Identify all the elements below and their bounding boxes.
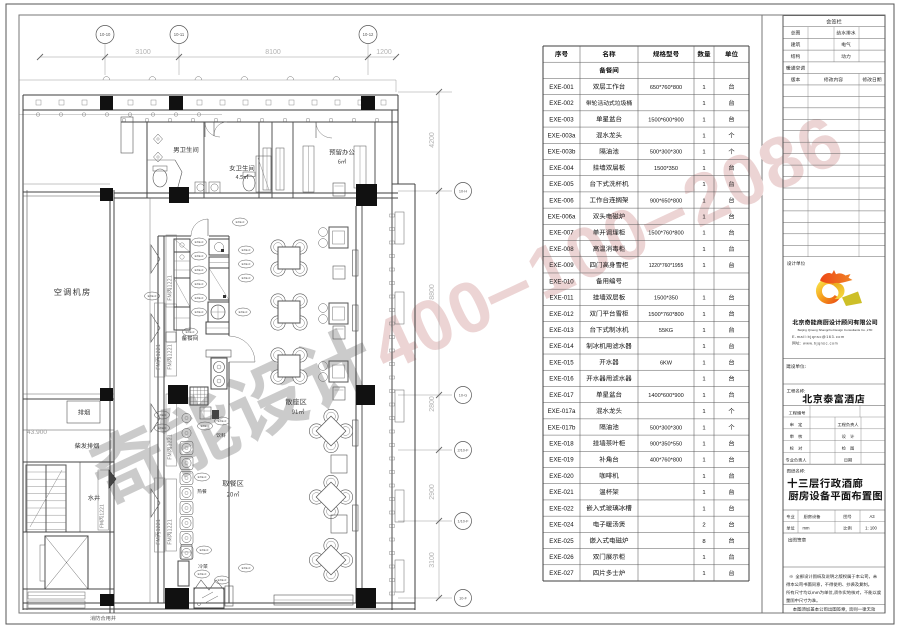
svg-text:EXE-0: EXE-0 xyxy=(218,419,227,423)
svg-text:EXE-0: EXE-0 xyxy=(218,578,227,582)
svg-text:EXE-0: EXE-0 xyxy=(242,566,251,570)
svg-text:900*650*800: 900*650*800 xyxy=(650,198,682,204)
svg-text:EXE-0: EXE-0 xyxy=(239,310,248,314)
svg-text:1: 100: 1: 100 xyxy=(865,526,877,531)
svg-text:10-G: 10-G xyxy=(459,394,467,398)
svg-text:10-H: 10-H xyxy=(459,190,467,194)
svg-text:EXE-0: EXE-0 xyxy=(200,548,209,552)
svg-text:1: 1 xyxy=(702,231,705,237)
svg-text:1: 1 xyxy=(702,296,705,302)
svg-text:900*350*550: 900*350*550 xyxy=(650,441,682,447)
svg-text:EXE-013: EXE-013 xyxy=(549,327,574,334)
svg-text:1: 1 xyxy=(702,393,705,399)
svg-text:EXE-0: EXE-0 xyxy=(195,310,204,314)
svg-text:2800: 2800 xyxy=(429,396,436,412)
svg-text:55KG: 55KG xyxy=(659,328,673,334)
svg-text:1: 1 xyxy=(702,182,705,188)
svg-text:EXE-017: EXE-017 xyxy=(549,392,574,399)
svg-text:EXE-024: EXE-024 xyxy=(549,522,574,529)
svg-text:EXE-0: EXE-0 xyxy=(242,248,251,252)
svg-text:EXE-018: EXE-018 xyxy=(549,440,574,447)
svg-text:1: 1 xyxy=(702,344,705,350)
svg-text:EXE-026: EXE-026 xyxy=(549,554,574,561)
svg-text:10-F: 10-F xyxy=(459,597,467,601)
svg-text:EXE-014: EXE-014 xyxy=(549,343,574,350)
svg-text:EXE-016: EXE-016 xyxy=(549,376,574,383)
svg-text:3100: 3100 xyxy=(429,552,436,568)
svg-text:EXE-0: EXE-0 xyxy=(242,262,251,266)
svg-text:2: 2 xyxy=(702,523,705,529)
svg-text:4200: 4200 xyxy=(429,132,436,148)
svg-text:1/10-F: 1/10-F xyxy=(458,520,470,524)
svg-text:EXE-003a: EXE-003a xyxy=(548,132,576,139)
svg-text:EXE-0: EXE-0 xyxy=(236,220,245,224)
svg-text:10-10: 10-10 xyxy=(100,32,111,37)
svg-text:3100: 3100 xyxy=(135,49,151,56)
svg-text:2086: 2086 xyxy=(671,100,855,243)
svg-text:1: 1 xyxy=(702,555,705,561)
svg-text:650*760*800: 650*760*800 xyxy=(650,85,682,91)
svg-text:2900: 2900 xyxy=(429,484,436,500)
svg-text:EXE-001: EXE-001 xyxy=(549,84,574,91)
svg-text:EXE-020: EXE-020 xyxy=(549,473,574,480)
svg-text:EXE-006a: EXE-006a xyxy=(548,214,576,221)
svg-text:1: 1 xyxy=(702,328,705,334)
svg-text:400*760*800: 400*760*800 xyxy=(650,458,682,464)
svg-text:EXE-0: EXE-0 xyxy=(158,413,167,417)
svg-text:EXE-0: EXE-0 xyxy=(186,330,195,334)
svg-text:EXE-019: EXE-019 xyxy=(549,457,574,464)
svg-text:1: 1 xyxy=(702,133,705,139)
svg-text:2/10-F: 2/10-F xyxy=(458,449,470,453)
svg-text:EXE-003: EXE-003 xyxy=(549,116,574,123)
svg-text:1: 1 xyxy=(702,490,705,496)
svg-text:Beijing Qineng Shangchu Design: Beijing Qineng Shangchu Design Consultan… xyxy=(798,328,874,332)
svg-text:EXE-011: EXE-011 xyxy=(550,295,575,302)
svg-text:EXE-0: EXE-0 xyxy=(242,276,251,280)
svg-text:EXE-002: EXE-002 xyxy=(549,100,574,107)
svg-text:1: 1 xyxy=(702,198,705,204)
svg-text:400: 400 xyxy=(359,263,506,388)
svg-text:EXE-007: EXE-007 xyxy=(549,230,574,237)
svg-text:EXE-005: EXE-005 xyxy=(549,181,574,188)
svg-text:1400*600*900: 1400*600*900 xyxy=(648,393,683,399)
svg-text:EXE-021: EXE-021 xyxy=(549,489,574,496)
svg-text:1: 1 xyxy=(702,409,705,415)
svg-text:EXE-0: EXE-0 xyxy=(148,294,157,298)
svg-text:500*300*300: 500*300*300 xyxy=(650,150,682,156)
svg-text:EXE-006: EXE-006 xyxy=(549,197,574,204)
svg-text:1: 1 xyxy=(702,571,705,577)
svg-text:EXE-017a: EXE-017a xyxy=(548,408,576,415)
svg-text:1: 1 xyxy=(702,506,705,512)
svg-text:1: 1 xyxy=(702,425,705,431)
svg-text:1: 1 xyxy=(702,215,705,221)
svg-text:1: 1 xyxy=(702,101,705,107)
svg-text:EXE-0: EXE-0 xyxy=(158,426,167,430)
svg-text:1: 1 xyxy=(702,312,705,318)
svg-text:EXE-0: EXE-0 xyxy=(195,240,204,244)
svg-text:EXE-004: EXE-004 xyxy=(549,165,574,172)
svg-text:1500*760*800: 1500*760*800 xyxy=(648,312,683,318)
svg-text:1: 1 xyxy=(702,360,705,366)
svg-text:EXE-0: EXE-0 xyxy=(195,268,204,272)
svg-text:6KW: 6KW xyxy=(660,360,673,366)
svg-text:8: 8 xyxy=(702,539,706,545)
svg-text:1: 1 xyxy=(702,85,705,91)
svg-text:1500*600*900: 1500*600*900 xyxy=(648,117,683,123)
svg-text:10-11: 10-11 xyxy=(174,32,185,37)
svg-text:10-12: 10-12 xyxy=(363,32,374,37)
svg-text:1: 1 xyxy=(702,474,705,480)
svg-text:E-mail:bjqnsc@163.com: E-mail:bjqnsc@163.com xyxy=(792,335,845,339)
svg-text:EXE-025: EXE-025 xyxy=(549,538,574,545)
svg-text:EXE-0: EXE-0 xyxy=(201,424,210,428)
svg-text:1220*760*1955: 1220*760*1955 xyxy=(649,263,684,269)
svg-text:EXE-0: EXE-0 xyxy=(195,296,204,300)
svg-text:1: 1 xyxy=(702,117,705,123)
svg-text:EXE-0: EXE-0 xyxy=(198,475,207,479)
svg-text:EXE-008: EXE-008 xyxy=(549,246,574,253)
svg-text:EXE-027: EXE-027 xyxy=(549,570,574,577)
svg-text:43.900: 43.900 xyxy=(27,429,47,436)
svg-text:EXE-0: EXE-0 xyxy=(198,572,207,576)
svg-text:500*300*300: 500*300*300 xyxy=(650,425,682,431)
svg-text:1500*350: 1500*350 xyxy=(654,166,678,172)
svg-text:1: 1 xyxy=(702,458,705,464)
svg-text:1: 1 xyxy=(702,377,705,383)
svg-text:EXE-003b: EXE-003b xyxy=(548,149,576,156)
svg-text:1: 1 xyxy=(702,441,705,447)
svg-text:8100: 8100 xyxy=(265,49,281,56)
svg-text:1: 1 xyxy=(702,166,705,172)
svg-text:1500*350: 1500*350 xyxy=(654,296,678,302)
svg-text:EXE-0: EXE-0 xyxy=(195,254,204,258)
svg-text:1500*760*800: 1500*760*800 xyxy=(648,231,683,237)
svg-text:1: 1 xyxy=(702,150,705,156)
svg-text:EXE-022: EXE-022 xyxy=(549,505,574,512)
svg-text:EXE-012: EXE-012 xyxy=(549,311,574,318)
svg-text:1: 1 xyxy=(702,247,705,253)
svg-text:mm: mm xyxy=(803,526,810,531)
svg-text:EXE-0: EXE-0 xyxy=(195,282,204,286)
svg-text:100: 100 xyxy=(515,190,662,315)
svg-text:EXE-010: EXE-010 xyxy=(549,278,574,285)
svg-text:8800: 8800 xyxy=(429,284,436,300)
svg-text:1200: 1200 xyxy=(376,49,392,56)
svg-text:EXE-017b: EXE-017b xyxy=(548,424,576,431)
svg-text:www.bjqnsc.com: www.bjqnsc.com xyxy=(803,342,838,346)
svg-text:A3: A3 xyxy=(869,514,875,519)
svg-text:EXE-009: EXE-009 xyxy=(549,262,574,269)
svg-text:1: 1 xyxy=(702,263,705,269)
svg-text:EXE-015: EXE-015 xyxy=(549,359,574,366)
